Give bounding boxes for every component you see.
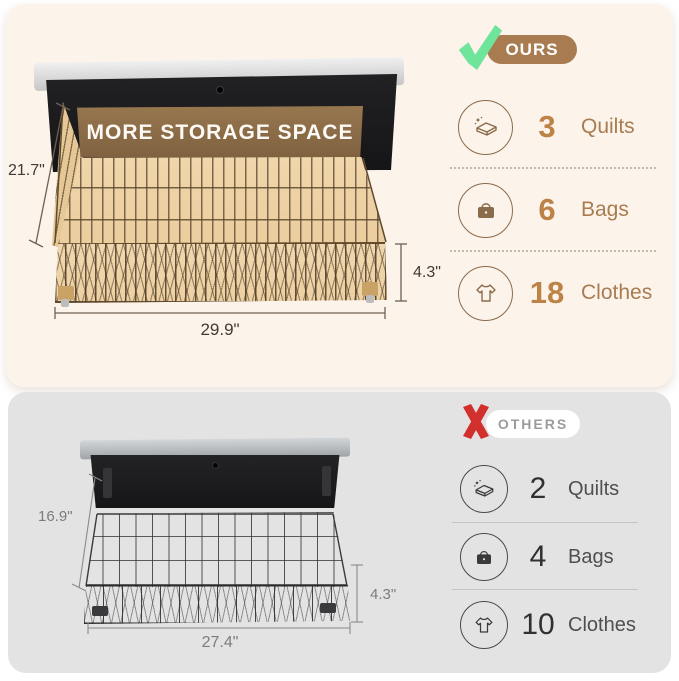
ours-capacity-row-clothes: 18 Clothes [458, 258, 673, 328]
others-clothes-count: 10 [512, 608, 564, 642]
ours-basket-front-wall [55, 242, 387, 303]
others-height-dimension: 4.3" [370, 586, 396, 603]
others-capacity-row-bags: 4 Bags [460, 526, 670, 588]
ours-caster-left [61, 299, 69, 307]
ours-depth-dimension: 21.7" [8, 162, 45, 180]
others-capacity-row-clothes: 10 Clothes [460, 594, 670, 656]
ours-clothes-label: Clothes [581, 281, 652, 305]
quilt-icon [458, 100, 513, 155]
bag-icon [460, 533, 508, 581]
others-depth-dimension: 16.9" [38, 508, 73, 525]
others-basket-front-wall [84, 585, 350, 624]
others-mount-bracket-right [322, 466, 331, 496]
others-separator-1 [452, 522, 638, 523]
ours-caster-right [366, 295, 374, 303]
ours-storage-banner: MORE STORAGE SPACE [77, 106, 363, 159]
x-icon [461, 404, 491, 439]
tshirt-icon [460, 601, 508, 649]
others-basket-foot-left [92, 606, 108, 616]
ours-bags-count: 6 [519, 192, 575, 228]
ours-basket-foot-right [362, 282, 378, 296]
others-bags-count: 4 [512, 540, 564, 574]
others-basket-foot-right [320, 603, 336, 613]
others-badge: OTHERS [486, 410, 580, 438]
others-quilts-label: Quilts [568, 478, 619, 501]
ours-basket-floor [58, 157, 386, 245]
others-basket-floor [86, 512, 348, 587]
others-clothes-label: Clothes [568, 614, 636, 637]
ours-bags-label: Bags [581, 198, 629, 222]
ours-capacity-row-bags: 6 Bags [458, 175, 673, 245]
ours-quilts-label: Quilts [581, 115, 635, 139]
comparison-infographic: MORE STORAGE SPACE [0, 0, 679, 681]
ours-separator-2 [450, 250, 656, 252]
bag-icon [458, 183, 513, 238]
others-width-dimension: 27.4" [165, 634, 275, 652]
ours-panel-button [216, 86, 224, 94]
quilt-icon [460, 465, 508, 513]
others-separator-2 [452, 589, 638, 590]
others-panel-button [212, 462, 219, 469]
others-mount-bracket-left [103, 468, 112, 498]
ours-separator-1 [450, 167, 656, 169]
ours-clothes-count: 18 [519, 275, 575, 311]
ours-quilts-count: 3 [519, 109, 575, 145]
ours-capacity-row-quilts: 3 Quilts [458, 92, 673, 162]
ours-height-dimension: 4.3" [413, 264, 441, 282]
others-capacity-row-quilts: 2 Quilts [460, 458, 670, 520]
check-icon [455, 22, 503, 72]
others-badge-label: OTHERS [498, 416, 568, 432]
tshirt-icon [458, 266, 513, 321]
others-bags-label: Bags [568, 546, 614, 569]
ours-basket-foot-left [58, 286, 74, 300]
others-quilts-count: 2 [512, 472, 564, 506]
ours-width-dimension: 29.9" [165, 320, 275, 340]
ours-banner-text: MORE STORAGE SPACE [87, 121, 354, 145]
ours-badge-label: OURS [505, 40, 558, 60]
